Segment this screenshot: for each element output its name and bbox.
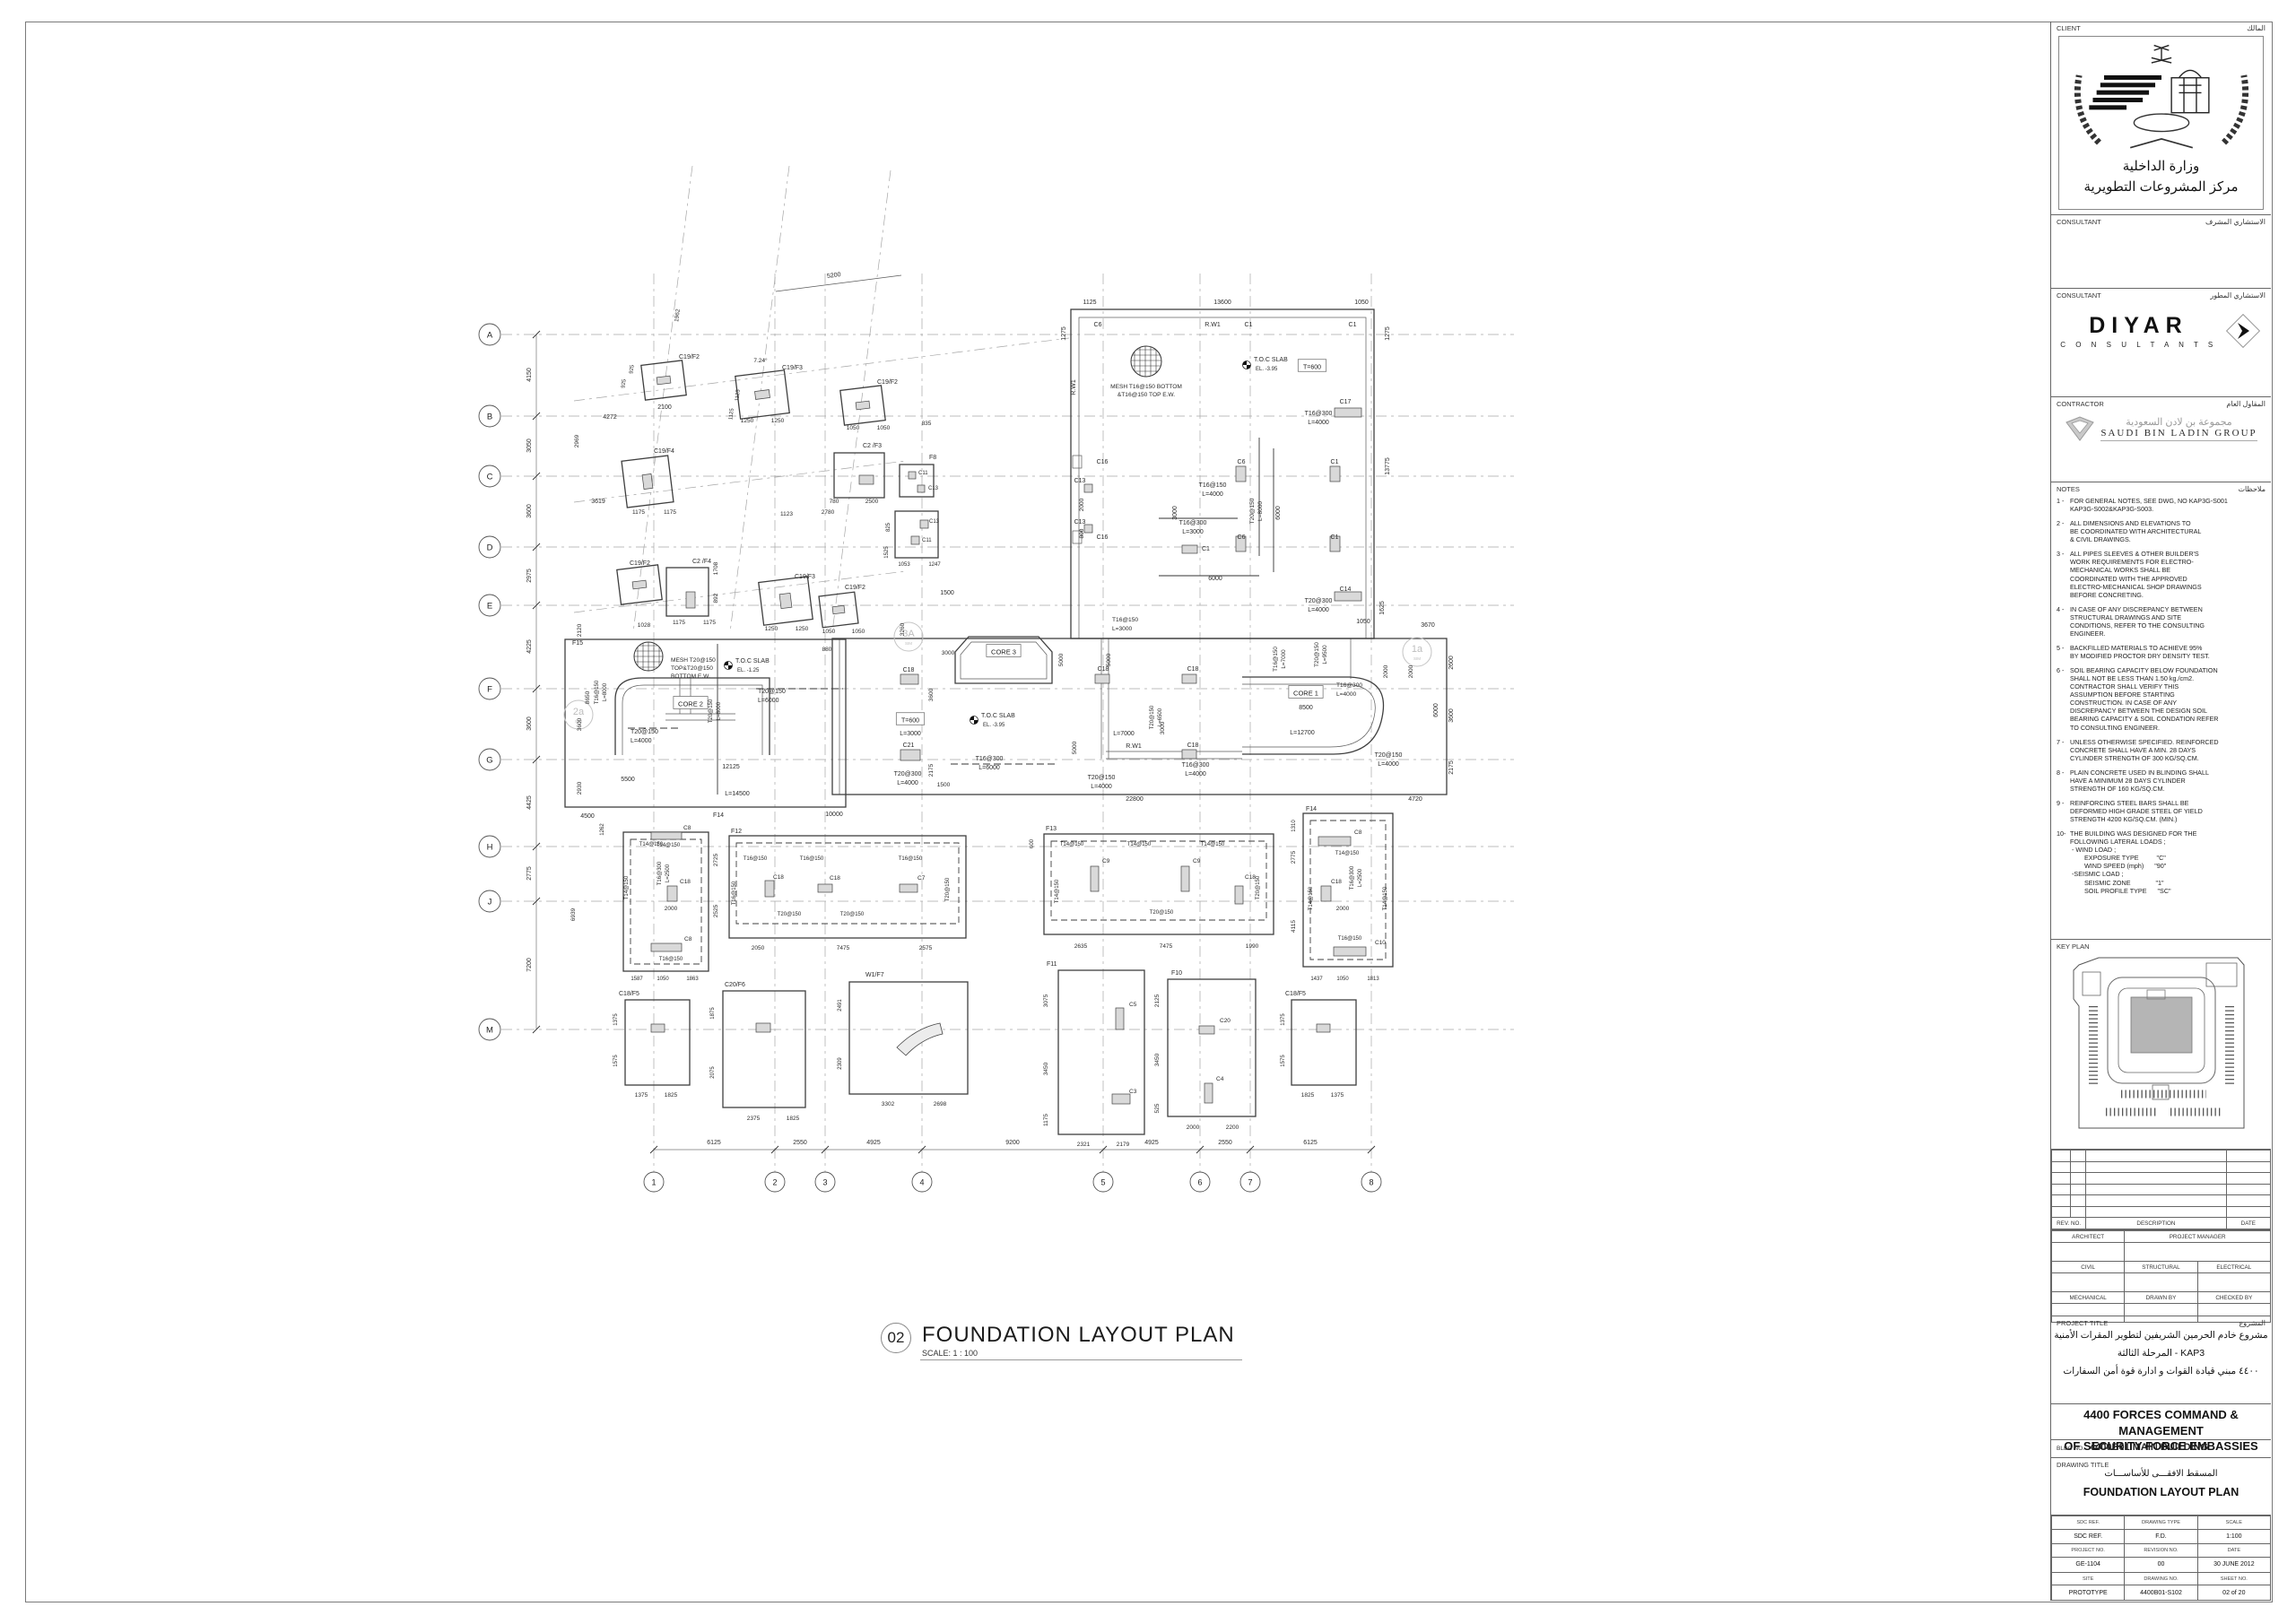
- plan-annotation: 1125: [728, 407, 735, 420]
- plan-annotation: C21: [903, 743, 915, 749]
- plan-annotation: C18: [903, 667, 915, 673]
- signature-label-cell: CHECKED BY: [2197, 1292, 2270, 1304]
- ministry-emblem: [2059, 40, 2264, 155]
- plan-annotation: 3450: [1043, 1062, 1049, 1075]
- plan-annotation: 1247: [928, 562, 941, 568]
- key-plan-map: [2072, 952, 2251, 1139]
- revision-header-cell: DESCRIPTION: [2086, 1218, 2226, 1229]
- plan-annotation: C8: [1354, 829, 1362, 836]
- plan-annotation: 5000: [1058, 653, 1065, 666]
- plan-annotation: 2321: [1077, 1142, 1091, 1148]
- plan-annotation: T.O.C SLAB: [981, 713, 1015, 719]
- client-box: وزارة الداخلية مركز المشروعات التطويرية: [2058, 36, 2264, 210]
- info-header-cell: SITE: [2052, 1572, 2125, 1585]
- plan-annotation: 7.24°: [753, 357, 768, 364]
- plan-annotation: 780: [830, 499, 839, 505]
- column-footprint: [755, 390, 770, 400]
- plan-annotation: C9: [1193, 858, 1201, 864]
- plan-annotation: 2120: [577, 623, 583, 637]
- plan-annotation: 3600: [928, 688, 935, 701]
- plan-annotation: 525: [1154, 1103, 1161, 1113]
- plan-annotation: 1050: [1356, 619, 1370, 625]
- plan-annotation: T14@150: [1201, 842, 1225, 847]
- plan-annotation: T16@150: [595, 680, 600, 704]
- plan-annotation: 1250: [771, 418, 785, 424]
- plan-annotation: T16@300: [976, 756, 1004, 762]
- plan-annotation: 1175: [664, 509, 676, 516]
- plan-annotation: C19/F2: [630, 560, 650, 567]
- column-footprint: [1318, 837, 1351, 846]
- plan-annotation: F8: [929, 455, 936, 461]
- plan-annotation: 1175: [673, 620, 685, 626]
- grid-bubble-col-label: 4: [919, 1178, 924, 1187]
- plan-annotation: L=4000: [1308, 420, 1329, 426]
- plan-annotation: T20@150: [1314, 642, 1320, 667]
- plan-annotation: 1050: [852, 629, 865, 635]
- project-ar-line1: مشروع خادم الحرمين الشريفين لتطوير المقر…: [2051, 1327, 2271, 1345]
- revision-header-cell: REV. NO.: [2052, 1218, 2086, 1229]
- grid-bubble-row-label: F: [487, 685, 492, 695]
- plan-annotation: L=3000: [1182, 529, 1204, 535]
- revision-empty-cell: [2226, 1195, 2270, 1207]
- bldg-no-row: BLDG NO. 4400B01 MAIN BUILDING: [2051, 1440, 2271, 1458]
- plan-annotation: L=4000: [1378, 761, 1399, 768]
- info-header-cell: DATE: [2197, 1544, 2270, 1558]
- column-footprint: [779, 593, 792, 608]
- plan-annotation: C11: [922, 538, 932, 543]
- plan-annotation: 4115: [1291, 920, 1297, 933]
- plan-annotation: 12125: [722, 764, 740, 770]
- drawing-title-section: DRAWING TITLE المسقط الافقـــى للأساســـ…: [2051, 1458, 2271, 1515]
- plan-annotation: C18: [680, 879, 691, 885]
- plan-annotation: 7475: [837, 945, 850, 951]
- plan-annotation: 2000: [1408, 664, 1414, 678]
- plan-annotation: R.W1: [1071, 379, 1077, 395]
- plan-annotation: T16@300: [1182, 762, 1210, 769]
- foundation-plan-svg: 12345678ABCDEFGHJM4150305036002975422536…: [0, 0, 2050, 1624]
- column-footprint: [818, 884, 832, 892]
- plan-annotation: T16@150: [800, 856, 824, 862]
- notes-list: 1 -FOR GENERAL NOTES, SEE DWG, NO KAP3G-…: [2051, 493, 2271, 905]
- boxed-label-text: T=600: [901, 717, 919, 724]
- dim-text-col: 6125: [707, 1140, 721, 1146]
- revision-empty-cell: [2071, 1173, 2086, 1185]
- client-label-ar: المالك: [2247, 24, 2266, 32]
- plan-annotation: 1310: [1291, 820, 1297, 832]
- note-item: 10-THE BUILDING WAS DESIGNED FOR THE FOL…: [2057, 829, 2266, 895]
- column-footprint: [911, 536, 919, 544]
- project-ar-line2: المرحلة الثالثة - KAP3: [2051, 1345, 2271, 1363]
- plan-annotation: 1863: [686, 977, 699, 982]
- plan-annotation: 2969: [574, 434, 580, 447]
- note-item: 8 -PLAIN CONCRETE USED IN BLINDING SHALL…: [2057, 769, 2266, 793]
- boxed-label-text: CORE 3: [991, 648, 1016, 656]
- plan-annotation: T20@150: [1088, 775, 1116, 781]
- revision-empty-cell: [2086, 1195, 2226, 1207]
- plan-annotation: 800: [1079, 528, 1085, 538]
- plan-annotation: 10000: [825, 812, 843, 818]
- plan-annotation: 2175: [928, 763, 935, 777]
- column-footprint: [920, 520, 928, 528]
- consultant-developer-section: CONSULTANT الاستشاري المطور DIYAR C O N …: [2051, 289, 2271, 397]
- info-value-cell: 1:100: [2197, 1529, 2270, 1543]
- info-value-cell: 00: [2125, 1558, 2197, 1572]
- plan-annotation: C4: [1216, 1076, 1224, 1082]
- plan-annotation: T20@150: [945, 877, 951, 901]
- column-footprint: [856, 401, 870, 410]
- plan-annotation: 892: [713, 593, 719, 603]
- plan-annotation: 7475: [1160, 943, 1173, 950]
- note-item: 7 -UNLESS OTHERWISE SPECIFIED. REINFORCE…: [2057, 738, 2266, 762]
- grid-bubble-row-label: J: [488, 898, 492, 908]
- plan-annotation: 1500: [940, 590, 954, 596]
- revision-empty-cell: [2226, 1206, 2270, 1218]
- project-title-section: PROJECT TITLE المشروع مشروع خادم الحرمين…: [2051, 1316, 2271, 1404]
- plan-annotation: T20@300: [1305, 598, 1333, 604]
- signature-table: ARCHITECTPROJECT MANAGER CIVILSTRUCTURAL…: [2051, 1230, 2271, 1316]
- revision-empty-cell: [2086, 1151, 2226, 1162]
- bldg-no-label: BLDG NO.: [2057, 1446, 2084, 1452]
- plan-annotation: F15: [572, 640, 583, 647]
- footing-outline: [1291, 1000, 1356, 1085]
- plan-annotation: L=4000: [1308, 607, 1329, 613]
- plan-annotation: C6: [1238, 534, 1246, 541]
- column-footprint: [686, 592, 695, 608]
- diyar-logo-subtext: C O N S U L T A N T S: [2060, 341, 2217, 349]
- plan-annotation: 1825: [665, 1092, 678, 1099]
- plan-annotation: 1050: [847, 425, 860, 431]
- plan-annotation: L=2500: [665, 864, 671, 882]
- boxed-label-text: CORE 2: [678, 700, 703, 708]
- info-value-cell: 02 of 20: [2197, 1585, 2270, 1601]
- plan-annotation: 1250: [741, 418, 754, 424]
- column-footprint: [1091, 866, 1099, 891]
- plan-annotation: 2175: [1448, 760, 1455, 775]
- plan-line: [574, 338, 1069, 401]
- plan-annotation: C19/F2: [877, 379, 898, 386]
- plan-annotation: T.O.C SLAB: [735, 658, 770, 664]
- plan-annotation: 1250: [765, 626, 778, 632]
- plan-annotation: L=9500: [1322, 645, 1328, 664]
- plan-annotation: C7: [918, 875, 926, 881]
- plan-annotation: T20@150: [631, 729, 658, 735]
- plan-annotation: T16@150: [659, 957, 683, 962]
- plan-annotation: C6: [1094, 322, 1102, 328]
- revision-empty-cell: [2052, 1173, 2071, 1185]
- signature-label-cell: CIVIL: [2052, 1262, 2125, 1273]
- contractor-section: CONTRACTOR المقاول العام مجموعة بن لادن …: [2051, 397, 2271, 482]
- plan-title-text: FOUNDATION LAYOUT PLAN: [922, 1323, 1235, 1348]
- column-footprint: [859, 475, 874, 484]
- plan-annotation: 2698: [934, 1101, 947, 1107]
- plan-annotation: 1175: [703, 620, 716, 626]
- grid-bubble-col-label: 6: [1197, 1178, 1202, 1187]
- plan-annotation: C2 /F3: [863, 443, 882, 449]
- plan-annotation: 1050: [877, 425, 891, 431]
- plan-annotation: TOP&T20@150: [671, 665, 713, 672]
- plan-annotation: 2575: [919, 945, 933, 951]
- plan-annotation: 1050: [1354, 300, 1369, 306]
- plan-annotation: 835: [922, 421, 932, 427]
- plan-annotation: T14@150: [1127, 842, 1152, 847]
- column-footprint: [1321, 886, 1331, 901]
- revision-empty-cell: [2052, 1195, 2071, 1207]
- plan-annotation: L=2500: [1358, 868, 1363, 887]
- revision-empty-cell: [2086, 1173, 2226, 1185]
- plan-annotation: C18: [830, 875, 840, 881]
- signature-empty-cell: [2197, 1273, 2270, 1292]
- column-footprint: [1205, 1083, 1213, 1103]
- info-header-cell: DRAWING TYPE: [2125, 1516, 2197, 1530]
- plan-annotation: C2 /F4: [692, 559, 711, 565]
- plan-annotation: 1575: [1281, 1055, 1286, 1067]
- plan-annotation: &T16@150 TOP E.W.: [1118, 392, 1175, 398]
- dim-text-row: 2775: [526, 866, 533, 881]
- key-plan-section: KEY PLAN: [2051, 940, 2271, 1150]
- column-footprint: [909, 472, 916, 479]
- footing-outline: [1058, 970, 1144, 1134]
- footing-outline: [1071, 309, 1374, 638]
- plan-annotation: 2000: [1079, 498, 1085, 511]
- diyar-logo-icon: [2224, 312, 2262, 350]
- bldg-no-value: 4400B01 MAIN BUILDING: [2090, 1442, 2208, 1453]
- plan-annotation: C18: [1098, 666, 1109, 673]
- plan-annotation: C5: [1129, 1002, 1137, 1008]
- plan-annotation: 925: [621, 378, 627, 388]
- boxed-label-text: CORE 1: [1293, 690, 1318, 698]
- plan-annotation: 1875: [710, 1007, 716, 1020]
- plan-annotation: F13: [1046, 826, 1057, 832]
- notes-section: NOTES ملاحظات 1 -FOR GENERAL NOTES, SEE …: [2051, 482, 2271, 940]
- plan-annotation: 3302: [882, 1101, 895, 1107]
- plan-annotation: 2725: [713, 853, 719, 866]
- plan-annotation: 1050: [1336, 977, 1349, 982]
- client-org-line1: وزارة الداخلية: [2059, 157, 2263, 178]
- plan-annotation: 5500: [621, 777, 635, 783]
- plan-annotation: 3600: [577, 717, 583, 731]
- dim-text-col: 2550: [1218, 1140, 1232, 1146]
- column-footprint: [1182, 545, 1197, 553]
- plan-annotation: 1028: [638, 622, 651, 629]
- plan-annotation: EL. -3.95: [983, 723, 1005, 728]
- plan-annotation: R.W1: [1126, 743, 1142, 750]
- plan-annotation: 4720: [1408, 796, 1422, 803]
- grid-bubble-row-label: C: [487, 473, 493, 482]
- plan-annotation: L=4000: [897, 780, 918, 786]
- grid-bubble-col-label: 7: [1248, 1178, 1252, 1187]
- plan-annotation: L=12700: [1290, 730, 1315, 736]
- plan-annotation: 3450: [1154, 1053, 1161, 1066]
- sbg-name-en: SAUDI BIN LADIN GROUP: [2100, 428, 2257, 439]
- plan-annotation: 2635: [1074, 943, 1088, 950]
- plan-annotation: T14@150: [624, 875, 630, 899]
- plan-annotation: 2050: [752, 945, 765, 951]
- plan-annotation: C11: [918, 471, 928, 476]
- revision-empty-cell: [2071, 1161, 2086, 1173]
- column-footprint: [1335, 408, 1361, 417]
- plan-annotation: 1437: [1310, 977, 1323, 982]
- client-label: CLIENT: [2057, 24, 2081, 32]
- plan-annotation: T16@150: [744, 856, 768, 862]
- plan-annotation: BOTTOM E.W.: [671, 673, 710, 680]
- plan-annotation: T20@300: [894, 771, 922, 777]
- plan-annotation: C13: [1074, 519, 1086, 525]
- plan-annotation: 1375: [613, 1013, 619, 1026]
- revision-empty-cell: [2226, 1161, 2270, 1173]
- plan-annotation: T20@150: [778, 912, 802, 917]
- plan-annotation: 3000: [1160, 721, 1166, 734]
- toc-marker: [970, 716, 975, 721]
- grid-bubble-row-label: E: [487, 602, 492, 612]
- plan-annotation: W1/F7: [865, 972, 884, 978]
- plan-annotation: L=7000: [1113, 731, 1135, 737]
- grid-bubble-row-label: H: [487, 843, 493, 853]
- title-block: CLIENT المالك: [2050, 22, 2271, 1601]
- plan-annotation: C18: [1245, 874, 1256, 881]
- plan-annotation: L=8000: [603, 682, 608, 701]
- plan-annotation: T16@300: [1179, 520, 1207, 526]
- plan-annotation: 1825: [787, 1116, 800, 1122]
- plan-annotation: 1990: [1246, 943, 1259, 950]
- revision-empty-cell: [2071, 1151, 2086, 1162]
- dim-text-row: 4425: [526, 795, 533, 810]
- plan-annotation: 925: [629, 364, 635, 374]
- plan-annotation: 2500: [865, 499, 879, 505]
- revision-empty-cell: [2226, 1173, 2270, 1185]
- plan-annotation: T20@150: [840, 912, 865, 917]
- dim-text-row: 3600: [526, 716, 533, 731]
- note-item: 6 -SOIL BEARING CAPACITY BELOW FOUNDATIO…: [2057, 666, 2266, 732]
- plan-annotation: 8500: [1299, 705, 1313, 711]
- signature-empty-cell: [2052, 1243, 2125, 1262]
- plan-annotation: T20@150: [1375, 752, 1403, 759]
- core-wall-path: [897, 1023, 943, 1055]
- plan-annotation: 2525: [713, 904, 719, 917]
- revision-empty-cell: [2071, 1195, 2086, 1207]
- consultant2-label-ar: الاستشاري المطور: [2210, 291, 2266, 300]
- column-footprint: [1084, 525, 1092, 533]
- plan-annotation: 13775: [1385, 457, 1391, 475]
- plan-annotation: 1175: [632, 509, 645, 516]
- plan-annotation: 2200: [1226, 1125, 1239, 1131]
- plan-scale-text: SCALE: 1 : 100: [922, 1349, 1235, 1358]
- footing-outline: [625, 1000, 690, 1085]
- plan-annotation: C16: [1097, 534, 1109, 541]
- plan-annotation: 2075: [710, 1066, 716, 1079]
- signature-empty-cell: [2125, 1243, 2271, 1262]
- plan-annotation: T14@150: [1383, 886, 1388, 910]
- project-title-label: PROJECT TITLE: [2057, 1319, 2108, 1327]
- column-footprint: [900, 674, 918, 684]
- plan-annotation: 1275: [1385, 326, 1391, 341]
- plan-annotation: T20@150: [758, 689, 786, 695]
- plan-annotation: C10: [1375, 940, 1386, 946]
- info-header-cell: DRAWING NO.: [2125, 1572, 2197, 1585]
- footing-outline: [729, 836, 966, 938]
- grid-bubble-col-label: 1: [651, 1178, 656, 1187]
- plan-annotation: 2000: [665, 906, 678, 912]
- toc-marker: [1243, 361, 1248, 366]
- info-header-cell: SHEET NO.: [2197, 1572, 2270, 1585]
- plan-annotation: T16@150: [1273, 647, 1279, 672]
- plan-annotation: C18/F5: [1285, 991, 1306, 997]
- plan-annotation: C19/F4: [654, 448, 674, 455]
- revision-table: REV. NO.DESCRIPTIONDATE: [2051, 1150, 2271, 1230]
- info-header-cell: REVISION NO.: [2125, 1544, 2197, 1558]
- plan-annotation: L=8000: [1257, 501, 1264, 521]
- column-footprint: [632, 580, 647, 589]
- plan-annotation: C6: [1238, 459, 1246, 465]
- plan-annotation: 2000: [1383, 664, 1389, 678]
- grid-bubble-row-label: M: [486, 1026, 493, 1036]
- grid-bubble-col-label: 5: [1100, 1178, 1105, 1187]
- plan-annotation: L=8000: [717, 701, 722, 720]
- plan-annotation: EL. -3.95: [1256, 367, 1278, 372]
- signature-label-cell: MECHANICAL: [2052, 1292, 2125, 1304]
- note-item: 9 -REINFORCING STEEL BARS SHALL BE DEFOR…: [2057, 799, 2266, 823]
- footing-outline: [1044, 834, 1274, 934]
- signature-empty-cell: [2052, 1273, 2125, 1292]
- plan-annotation: 3260: [900, 622, 906, 636]
- plan-annotation: 1525: [884, 546, 890, 559]
- plan-annotation: 22800: [1126, 796, 1144, 803]
- plan-title: 02 FOUNDATION LAYOUT PLAN SCALE: 1 : 100: [881, 1323, 1242, 1360]
- drawing-title-label: DRAWING TITLE: [2057, 1461, 2109, 1469]
- plan-annotation: 5000: [1072, 741, 1078, 754]
- plan-annotation: T16@150: [1199, 482, 1227, 489]
- plan-annotation: T16@150: [899, 856, 923, 862]
- plan-annotation: 3600: [1448, 708, 1455, 723]
- plan-annotation: C17: [1340, 399, 1352, 405]
- plan-annotation: C19/F2: [845, 585, 865, 591]
- plan-annotation: 2100: [657, 404, 672, 411]
- drawing-title-ar: المسقط الافقـــى للأساســـات: [2051, 1469, 2271, 1479]
- note-item: 4 -IN CASE OF ANY DISCREPANCY BETWEEN ST…: [2057, 605, 2266, 638]
- plan-annotation: T20@150: [1256, 875, 1261, 899]
- dim-text-col: 9200: [1005, 1140, 1020, 1146]
- plan-annotation: 2780: [822, 509, 835, 516]
- signature-label-cell: DRAWN BY: [2125, 1292, 2197, 1304]
- plan-annotation: 1708: [713, 561, 719, 575]
- plan-annotation: T14@150: [1335, 851, 1360, 856]
- plan-annotation: 5000: [1106, 653, 1112, 666]
- column-footprint: [1235, 886, 1243, 904]
- column-footprint: [1182, 674, 1196, 683]
- info-header-cell: SCALE: [2197, 1516, 2270, 1530]
- plan-annotation: C19/F3: [795, 574, 815, 580]
- revision-empty-cell: [2071, 1184, 2086, 1195]
- info-value-cell: F.D.: [2125, 1529, 2197, 1543]
- column-footprint: [1199, 1026, 1214, 1034]
- plan-annotation: 6000: [1433, 703, 1439, 717]
- dim-text-row: 4225: [526, 639, 533, 654]
- plan-annotation: 5200: [827, 272, 841, 280]
- note-item: 2 -ALL DIMENSIONS AND ELEVATIONS TO BE C…: [2057, 519, 2266, 543]
- notes-label-ar: ملاحظات: [2238, 485, 2266, 493]
- plan-annotation: 1275: [1061, 326, 1067, 341]
- info-value-cell: SDC REF.: [2052, 1529, 2125, 1543]
- toc-marker: [974, 720, 978, 725]
- plan-annotation: 2000: [1187, 1125, 1200, 1131]
- footing-outline: [1051, 841, 1266, 920]
- column-footprint: [832, 605, 845, 614]
- signature-label-cell: PROJECT MANAGER: [2125, 1231, 2271, 1243]
- plan-annotation: 4272: [603, 414, 617, 421]
- note-item: 3 -ALL PIPES SLEEVES & OTHER BUILDER'S W…: [2057, 550, 2266, 598]
- column-footprint: [642, 473, 653, 489]
- plan-annotation: 2930: [577, 781, 583, 795]
- plan-annotation: 2375: [747, 1116, 761, 1122]
